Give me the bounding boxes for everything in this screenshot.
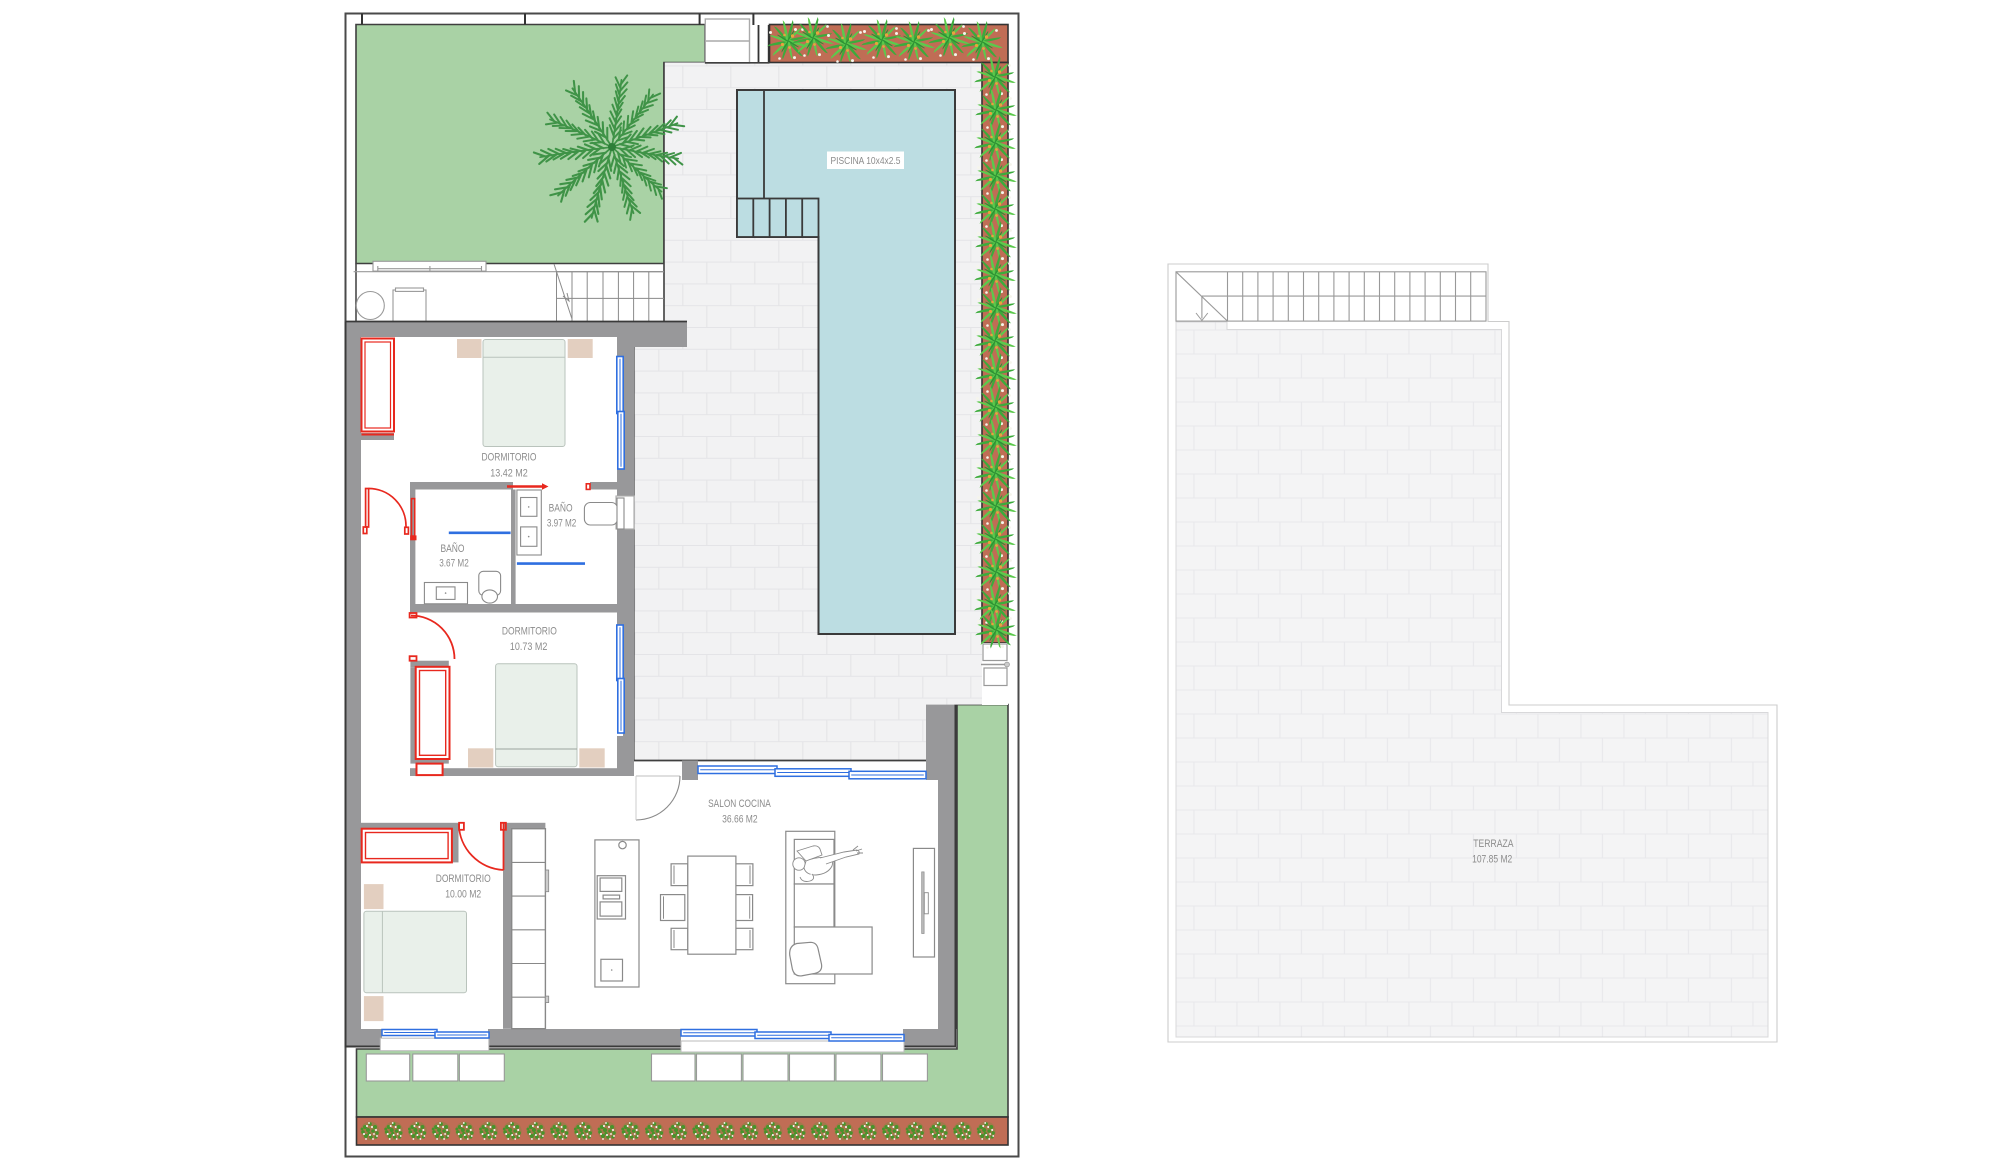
svg-text:BAÑO: BAÑO bbox=[441, 542, 465, 555]
svg-text:10.73 M2: 10.73 M2 bbox=[510, 641, 548, 653]
svg-text:DORMITORIO: DORMITORIO bbox=[436, 873, 491, 885]
svg-text:3.67 M2: 3.67 M2 bbox=[439, 558, 469, 570]
svg-text:BAÑO: BAÑO bbox=[549, 502, 573, 515]
svg-text:107.85 M2: 107.85 M2 bbox=[1472, 854, 1512, 866]
svg-text:PISCINA 10x4x2.5: PISCINA 10x4x2.5 bbox=[831, 155, 901, 167]
svg-text:DORMITORIO: DORMITORIO bbox=[502, 625, 557, 637]
svg-text:DORMITORIO: DORMITORIO bbox=[482, 452, 537, 464]
svg-text:10.00 M2: 10.00 M2 bbox=[445, 889, 481, 901]
svg-text:3.97 M2: 3.97 M2 bbox=[547, 517, 577, 529]
svg-text:TERRAZA: TERRAZA bbox=[1473, 838, 1514, 850]
svg-text:SALON COCINA: SALON COCINA bbox=[708, 798, 771, 810]
svg-text:36.66 M2: 36.66 M2 bbox=[722, 814, 758, 826]
svg-text:13.42 M2: 13.42 M2 bbox=[490, 468, 528, 480]
